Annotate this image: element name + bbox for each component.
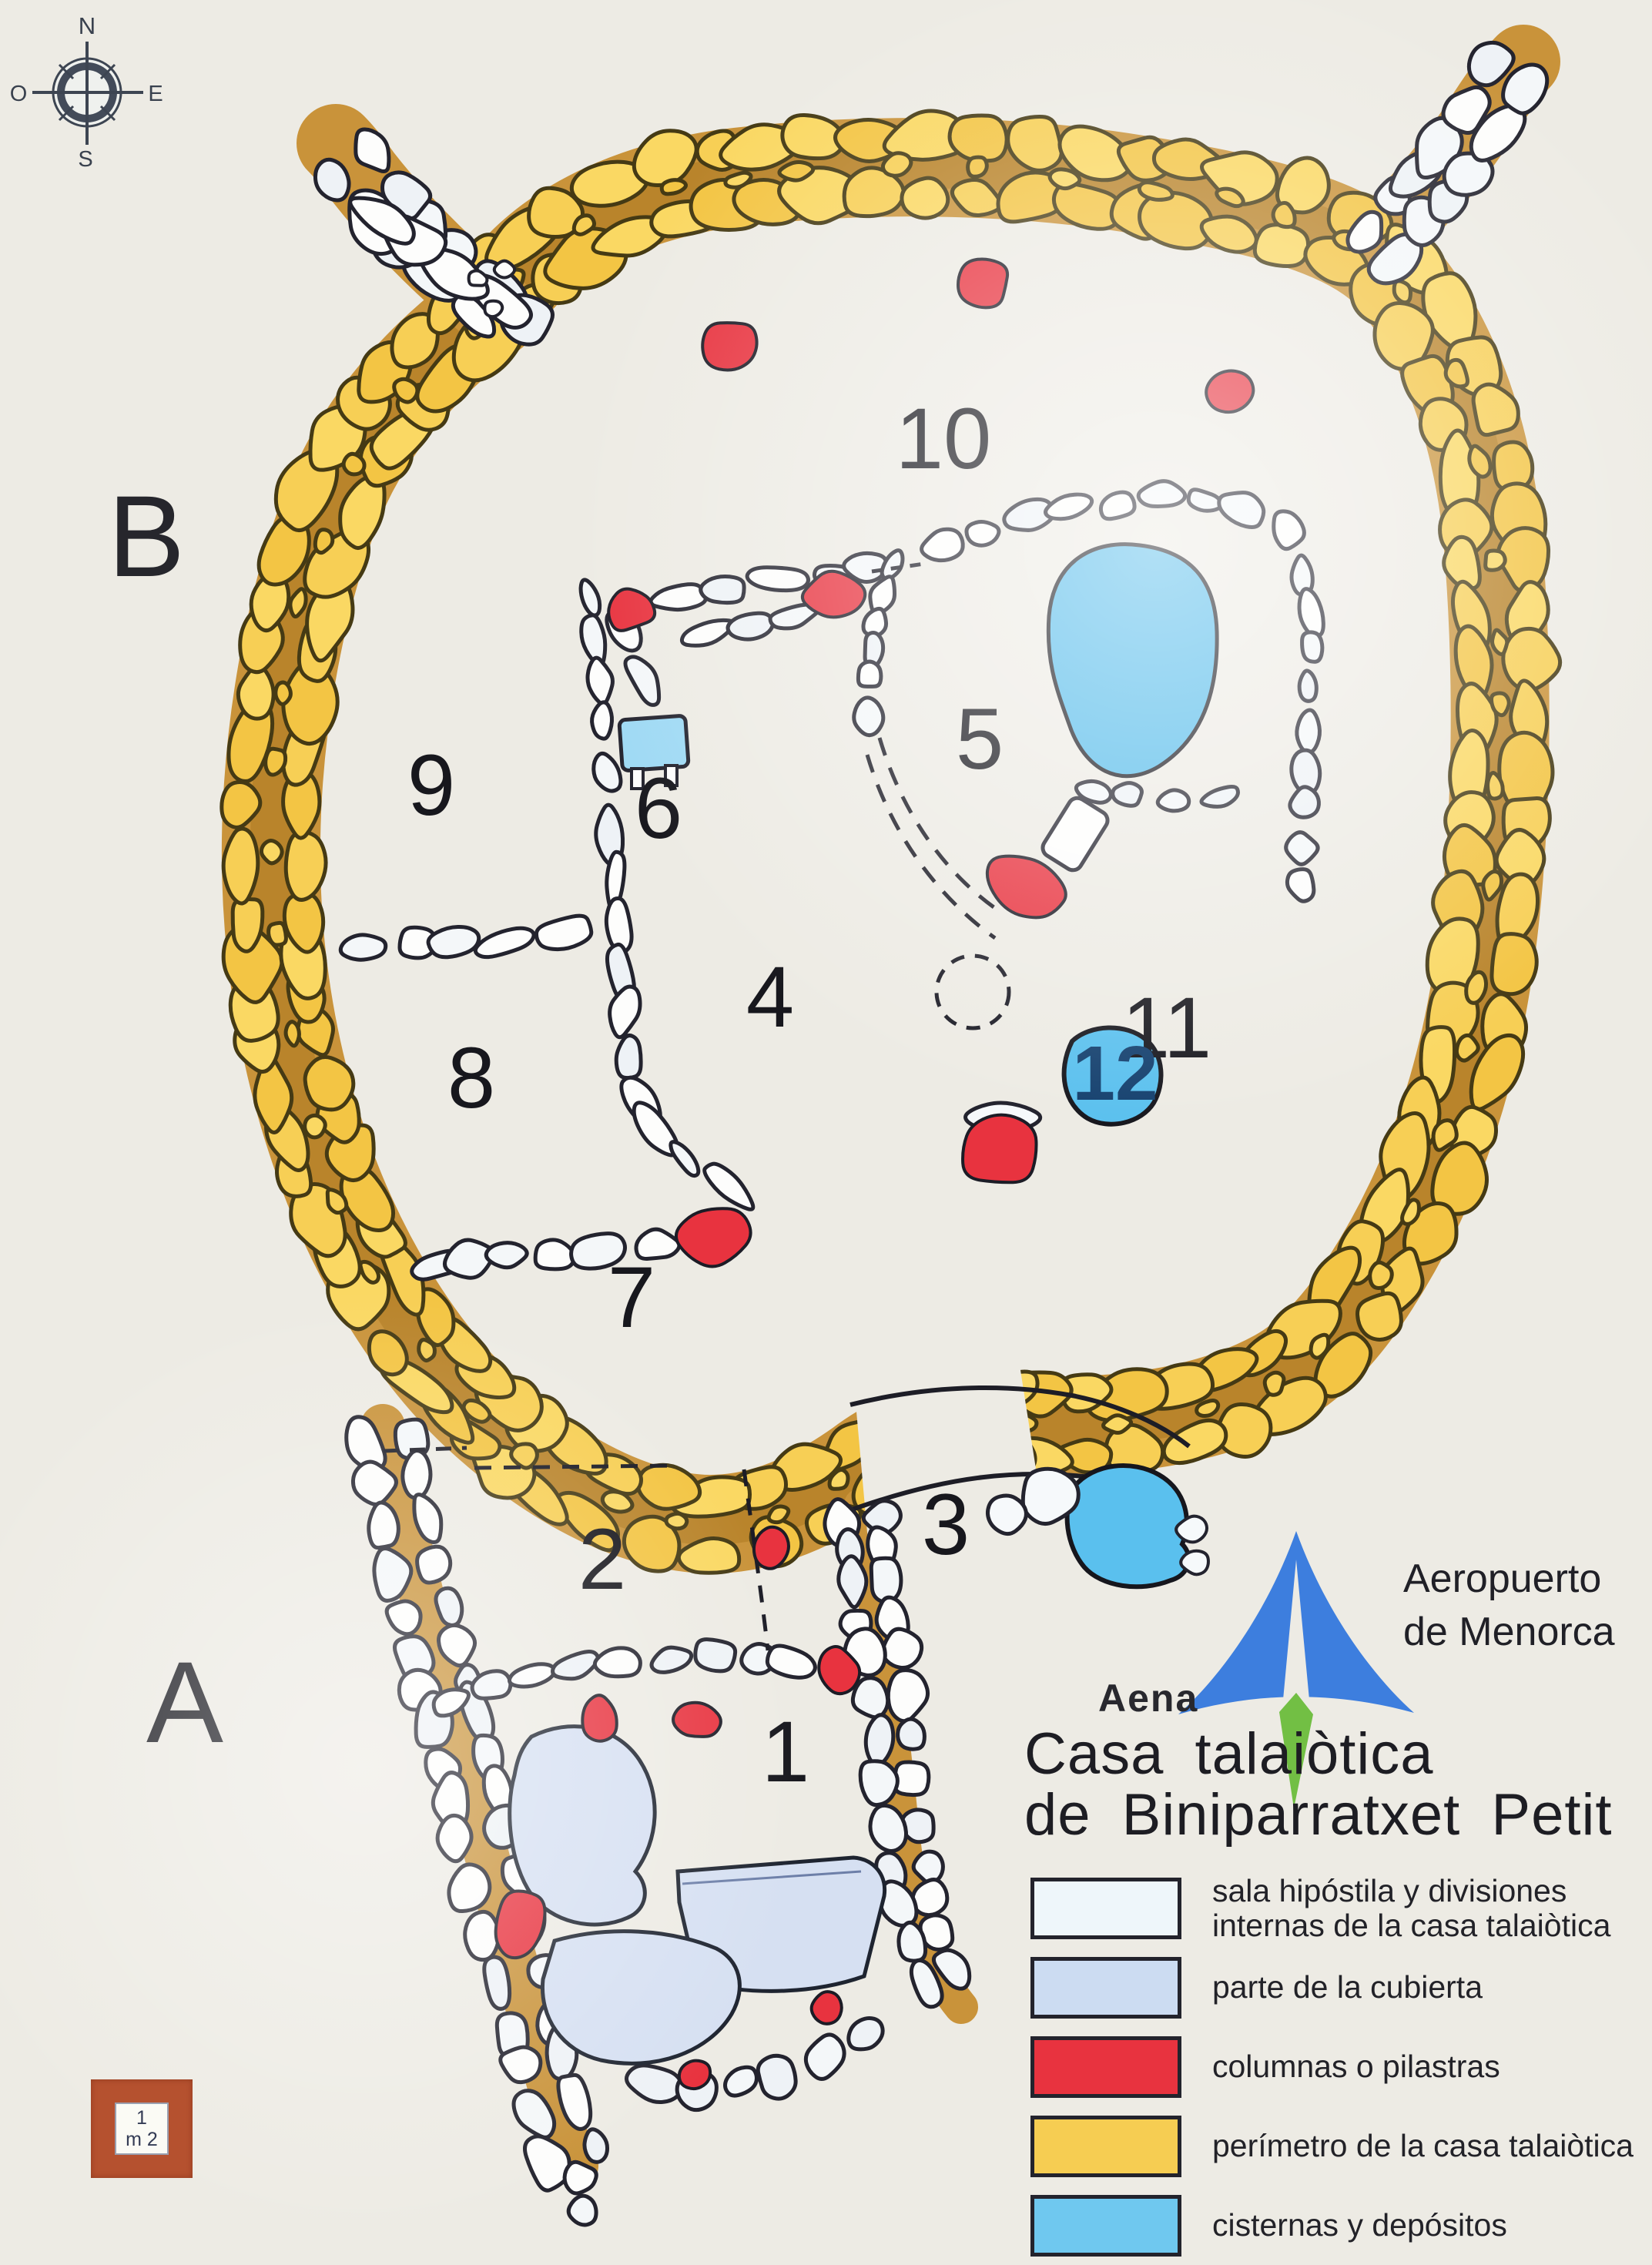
interior-wall bbox=[340, 916, 591, 960]
stone bbox=[1188, 490, 1221, 511]
legend-item-sala-hipostila: sala hipóstila y divisiones internas de … bbox=[1030, 1878, 1634, 1939]
stone bbox=[853, 1678, 887, 1717]
stone bbox=[652, 1647, 692, 1672]
stone bbox=[585, 2129, 608, 2162]
stone bbox=[1113, 783, 1142, 806]
pillar bbox=[987, 856, 1066, 918]
stone bbox=[758, 2056, 796, 2099]
cubierta-slab bbox=[542, 1932, 739, 2064]
stone bbox=[536, 916, 591, 949]
stone bbox=[1503, 628, 1560, 690]
stone bbox=[902, 178, 948, 218]
stone bbox=[883, 153, 910, 176]
scale-box: 1 m 2 bbox=[91, 2079, 193, 2178]
stone bbox=[286, 1022, 299, 1046]
water-label-12: 12 bbox=[1072, 1030, 1158, 1117]
compound-stones bbox=[565, 2162, 596, 2225]
room-label-2: 2 bbox=[578, 1511, 626, 1607]
stone bbox=[671, 1142, 699, 1176]
legend-item-perimetro: perímetro de la casa talaiòtica bbox=[1030, 2116, 1634, 2177]
stone bbox=[1297, 710, 1320, 752]
stone bbox=[472, 1671, 511, 1699]
room-label-3: 3 bbox=[922, 1476, 970, 1573]
stone bbox=[417, 1546, 451, 1583]
stone bbox=[305, 1115, 326, 1138]
stone bbox=[276, 682, 291, 704]
legend-label: perímetro de la casa talaiòtica bbox=[1212, 2129, 1634, 2163]
interior-wall bbox=[581, 580, 753, 1210]
stone bbox=[1158, 790, 1188, 811]
legend-text-line: cisternas y depósitos bbox=[1212, 2208, 1507, 2243]
stone bbox=[968, 157, 987, 176]
stone bbox=[625, 657, 659, 705]
stone bbox=[682, 620, 733, 645]
stone bbox=[883, 1629, 921, 1667]
legend-text-line: perímetro de la casa talaiòtica bbox=[1212, 2129, 1634, 2163]
stone bbox=[854, 698, 883, 735]
stone bbox=[501, 2047, 541, 2082]
legend-label: sala hipóstila y divisiones internas de … bbox=[1212, 1874, 1610, 1943]
scale-value: 1 bbox=[136, 2107, 147, 2129]
stone bbox=[1219, 493, 1264, 528]
cistern-surround bbox=[1076, 781, 1238, 810]
pillar bbox=[679, 2061, 710, 2089]
pebble bbox=[494, 261, 514, 278]
stone bbox=[1201, 786, 1238, 806]
stone bbox=[922, 529, 963, 560]
stone bbox=[1104, 1416, 1131, 1433]
stone bbox=[695, 1640, 736, 1671]
compass-label-west: O bbox=[10, 82, 28, 106]
pillar bbox=[1206, 370, 1253, 412]
stone bbox=[860, 1761, 897, 1805]
stone bbox=[1492, 934, 1536, 994]
stone bbox=[1311, 1335, 1329, 1358]
legend-item-cisternas: cisternas y depósitos bbox=[1030, 2195, 1634, 2257]
room-label-7: 7 bbox=[608, 1249, 655, 1345]
stone bbox=[806, 2035, 844, 2079]
stone bbox=[1274, 511, 1305, 549]
stone bbox=[592, 702, 612, 739]
stone bbox=[626, 2066, 682, 2102]
stone bbox=[1287, 869, 1313, 902]
stone bbox=[1265, 1372, 1284, 1395]
legend-label: columnas o pilastras bbox=[1212, 2049, 1500, 2084]
pillar bbox=[676, 1208, 751, 1266]
pillar bbox=[812, 1992, 842, 2024]
aena-wordmark: Aena bbox=[1098, 1676, 1198, 1721]
stone bbox=[725, 2067, 756, 2096]
stone bbox=[1394, 281, 1410, 303]
stone bbox=[565, 2162, 596, 2193]
legend-label: cisternas y depósitos bbox=[1212, 2208, 1507, 2243]
stone bbox=[1138, 481, 1185, 507]
stone bbox=[340, 935, 385, 960]
cistern-room5 bbox=[1048, 544, 1217, 776]
interior-wall bbox=[682, 605, 821, 646]
stone bbox=[1299, 589, 1323, 637]
stone bbox=[1488, 773, 1503, 799]
stone bbox=[705, 1164, 753, 1209]
stone bbox=[581, 580, 600, 615]
legend: sala hipóstila y divisiones internas de … bbox=[1030, 1878, 1634, 2265]
stone bbox=[266, 749, 286, 775]
stone bbox=[594, 753, 621, 791]
stone bbox=[223, 829, 258, 903]
stone bbox=[779, 163, 813, 181]
legend-item-columnas: columnas o pilastras bbox=[1030, 2036, 1634, 2098]
stone bbox=[666, 1513, 687, 1528]
stone bbox=[849, 2018, 883, 2049]
room-label-1: 1 bbox=[762, 1704, 809, 1800]
stone bbox=[261, 841, 282, 863]
stone bbox=[858, 662, 881, 686]
stone bbox=[987, 1496, 1026, 1534]
plan-title-line1: Casa talaiòtica bbox=[1024, 1724, 1613, 1784]
stone bbox=[728, 613, 773, 639]
legend-swatch-white bbox=[1030, 1878, 1181, 1939]
stone bbox=[369, 1503, 399, 1548]
stone bbox=[437, 1815, 471, 1861]
stone bbox=[1046, 494, 1092, 519]
scale-unit: m 2 bbox=[126, 2129, 158, 2150]
cistern-room3 bbox=[1067, 1466, 1189, 1587]
stone bbox=[403, 1451, 431, 1498]
legend-swatch-red bbox=[1030, 2036, 1181, 2098]
stone bbox=[882, 551, 903, 579]
stone bbox=[394, 379, 417, 402]
room-label-6: 6 bbox=[635, 760, 682, 856]
stone bbox=[419, 1340, 435, 1361]
stone bbox=[1491, 693, 1509, 715]
stone bbox=[1101, 492, 1134, 519]
stone bbox=[638, 1465, 700, 1509]
stone bbox=[428, 926, 479, 957]
stone bbox=[701, 577, 744, 603]
pillar bbox=[582, 1695, 616, 1741]
stone bbox=[465, 1912, 499, 1959]
stone bbox=[610, 987, 640, 1037]
stone bbox=[651, 585, 705, 610]
airport-name-line2: de Menorca bbox=[1403, 1606, 1615, 1659]
pillar bbox=[702, 323, 756, 370]
stone bbox=[535, 1240, 575, 1269]
legend-text-line: parte de la cubierta bbox=[1212, 1970, 1483, 2005]
legend-text-line: sala hipóstila y divisiones bbox=[1212, 1874, 1610, 1908]
compass-label-east: E bbox=[148, 82, 163, 106]
pillar bbox=[673, 1703, 721, 1737]
stone bbox=[616, 1036, 641, 1078]
stone bbox=[315, 159, 349, 200]
legend-label: parte de la cubierta bbox=[1212, 1970, 1483, 2005]
stone bbox=[1446, 360, 1467, 387]
legend-swatch-yellow bbox=[1030, 2116, 1181, 2177]
stone bbox=[1466, 972, 1486, 1003]
plan-title: Casa talaiòtica de Biniparratxet Petit bbox=[1024, 1724, 1613, 1845]
stone bbox=[343, 454, 364, 474]
stone bbox=[1286, 833, 1318, 865]
stone bbox=[1302, 632, 1322, 662]
stone bbox=[595, 1648, 640, 1677]
pillar bbox=[754, 1527, 789, 1569]
stone bbox=[767, 1646, 815, 1677]
stone bbox=[449, 1865, 490, 1912]
stone bbox=[769, 1506, 789, 1523]
stone bbox=[894, 1762, 929, 1795]
pillar bbox=[958, 259, 1007, 307]
stone bbox=[1197, 1400, 1218, 1416]
scale-box-inner: 1 m 2 bbox=[115, 2102, 169, 2155]
pebble bbox=[484, 301, 502, 317]
compass-label-north: N bbox=[79, 12, 96, 39]
stone bbox=[1050, 169, 1080, 189]
airport-name-line1: Aeropuerto bbox=[1403, 1553, 1615, 1606]
cistern-surround bbox=[1286, 555, 1324, 901]
stone bbox=[871, 1558, 901, 1602]
stone bbox=[1273, 203, 1295, 226]
stone bbox=[1290, 787, 1319, 817]
room-label-5: 5 bbox=[956, 691, 1004, 787]
compass-label-south: S bbox=[78, 147, 92, 172]
pebble bbox=[469, 271, 488, 286]
dashed-circle bbox=[937, 956, 1009, 1028]
stone bbox=[898, 1719, 925, 1749]
stone bbox=[1486, 551, 1506, 570]
airport-name: Aeropuerto de Menorca bbox=[1403, 1553, 1615, 1659]
stone bbox=[1255, 225, 1308, 266]
compass-rose-icon: N O E S bbox=[10, 12, 163, 172]
room-label-9: 9 bbox=[407, 737, 455, 833]
legend-swatch-cubierta bbox=[1030, 1957, 1181, 2019]
room-label-10: 10 bbox=[896, 390, 992, 487]
stone bbox=[568, 2196, 596, 2225]
stone bbox=[1039, 795, 1111, 874]
stone bbox=[553, 1652, 598, 1679]
room-label-4: 4 bbox=[746, 949, 794, 1045]
legend-text-line: internas de la casa talaiòtica bbox=[1212, 1908, 1610, 1943]
stone bbox=[967, 521, 999, 545]
stone bbox=[315, 530, 333, 553]
stone bbox=[1370, 1262, 1392, 1288]
stone bbox=[662, 180, 685, 194]
stone bbox=[387, 1601, 421, 1634]
legend-item-cubierta: parte de la cubierta bbox=[1030, 1957, 1634, 2019]
pillar bbox=[496, 1891, 545, 1958]
room-label-8: 8 bbox=[447, 1030, 495, 1126]
stone bbox=[1299, 671, 1316, 701]
plan-title-line2: de Biniparratxet Petit bbox=[1024, 1784, 1613, 1845]
area-label-B: B bbox=[108, 471, 185, 601]
stone bbox=[888, 1670, 927, 1721]
stone bbox=[305, 1057, 354, 1109]
pillar bbox=[608, 589, 655, 631]
stone bbox=[475, 928, 534, 957]
pillar bbox=[963, 1115, 1036, 1183]
stone bbox=[1358, 1293, 1402, 1339]
area-label-A: A bbox=[146, 1637, 223, 1767]
stone bbox=[269, 923, 287, 945]
stone bbox=[950, 116, 1007, 161]
legend-text-line: columnas o pilastras bbox=[1212, 2049, 1500, 2084]
legend-swatch-blue bbox=[1030, 2195, 1181, 2257]
stone bbox=[484, 1957, 510, 2009]
interior-wall bbox=[434, 1640, 815, 1716]
stone bbox=[486, 1243, 527, 1268]
stone bbox=[509, 1664, 554, 1687]
stone bbox=[747, 568, 808, 591]
stone bbox=[588, 658, 612, 704]
poster-archaeological-plan: 1096541187231BA12 N O E S Aena Aeropuert… bbox=[0, 0, 1652, 2265]
